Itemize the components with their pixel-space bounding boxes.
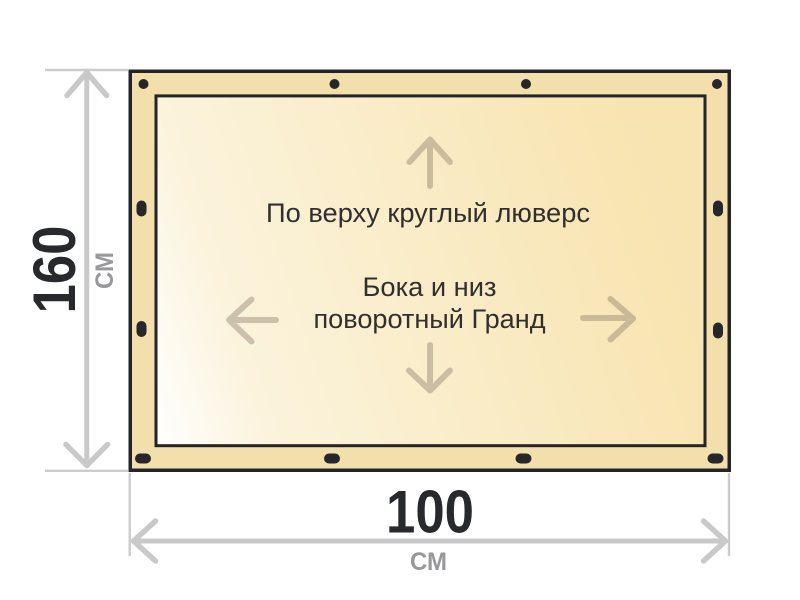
svg-text:СМ: СМ	[410, 548, 447, 576]
svg-text:100: 100	[386, 479, 474, 546]
svg-text:160: 160	[21, 226, 88, 314]
svg-text:поворотный Гранд: поворотный Гранд	[314, 304, 546, 334]
svg-text:По верху круглый люверс: По верху круглый люверс	[266, 198, 590, 228]
svg-text:СМ: СМ	[91, 252, 119, 289]
svg-text:Бока и низ: Бока и низ	[363, 272, 497, 302]
